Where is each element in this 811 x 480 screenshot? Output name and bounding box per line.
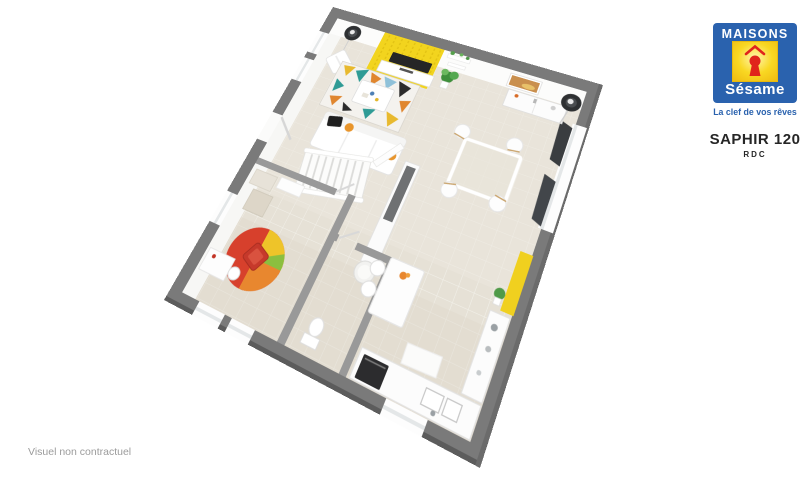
logo-brand-top: MAISONS [722, 28, 789, 41]
floorplan-svg [164, 7, 603, 468]
model-name: SAPHIR 120 [710, 131, 801, 148]
maisons-sesame-logo: MAISONS Sésame La clef de vos rêves SAPH… [713, 23, 797, 159]
floorplan-3d [164, 7, 603, 468]
logo-brand-bottom: Sésame [725, 82, 785, 97]
page-canvas: MAISONS Sésame La clef de vos rêves SAPH… [0, 0, 811, 480]
model-block: SAPHIR 120 RDC [713, 131, 797, 159]
logo-box: MAISONS Sésame [713, 23, 797, 103]
disclaimer-text: Visuel non contractuel [28, 446, 131, 458]
logo-tagline: La clef de vos rêves [713, 107, 797, 117]
model-level: RDC [713, 150, 797, 159]
keyhole-icon [732, 41, 778, 82]
